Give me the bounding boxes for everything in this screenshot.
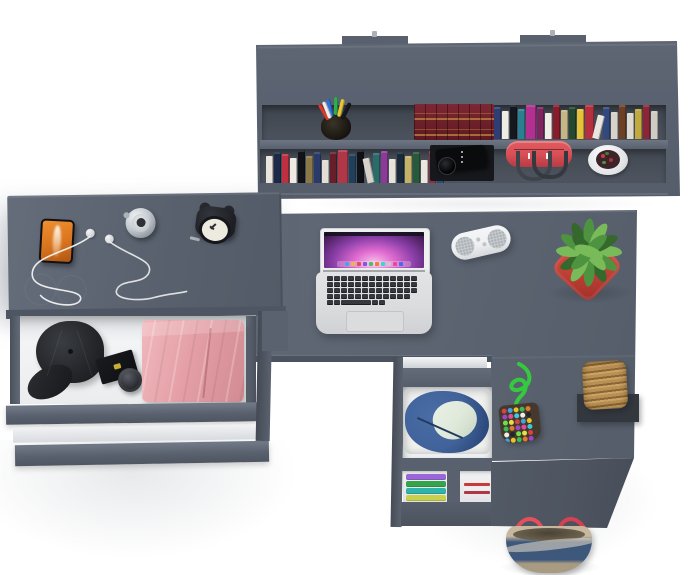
keyboard-row (327, 288, 423, 293)
watch-crown-icon (123, 212, 129, 218)
dock-icon (345, 262, 349, 266)
bead (519, 406, 524, 411)
key (334, 294, 340, 299)
key (341, 294, 347, 299)
wicker-basket (582, 360, 628, 410)
cap-button (68, 349, 73, 354)
book-spine (545, 113, 552, 139)
bead (503, 426, 508, 431)
key (362, 282, 368, 287)
desk-side-panel-top (262, 311, 288, 351)
book-spine (627, 113, 634, 139)
bead (516, 431, 521, 436)
book-spine (553, 105, 560, 139)
key (404, 276, 410, 281)
shelf-planter (588, 145, 628, 175)
book-spine (322, 160, 329, 183)
clothes-compartment (403, 471, 492, 502)
key (334, 276, 340, 281)
key (348, 282, 354, 287)
laptop-dock (337, 261, 411, 267)
drawer-side-wall (246, 316, 256, 404)
book-spine (290, 158, 297, 183)
black-cap (26, 321, 106, 401)
folded-linen (464, 483, 490, 486)
shelf-top-highlight (258, 44, 676, 49)
folded-linens-stack (464, 479, 490, 499)
key (383, 288, 389, 293)
book-spine (569, 107, 576, 139)
key (411, 276, 417, 281)
wall-shelf (256, 41, 680, 199)
lower-cabinet-bottom (401, 502, 493, 526)
planter-bud (601, 154, 605, 158)
folded-garment (406, 495, 446, 501)
book-spine (389, 159, 396, 183)
key (362, 294, 368, 299)
book-spine (619, 105, 626, 139)
key (376, 276, 382, 281)
bead (503, 420, 508, 425)
camera-recess (430, 145, 494, 181)
keyboard-row (327, 300, 423, 305)
key (397, 294, 403, 299)
bead (521, 418, 526, 423)
key (348, 288, 354, 293)
pens (320, 101, 354, 131)
book-spine (397, 152, 404, 183)
book-spine (298, 150, 305, 183)
planter-bud (609, 158, 613, 162)
left-cabinet-top (7, 192, 283, 312)
book-spine (266, 156, 273, 183)
book-spine (421, 160, 428, 183)
drawer-front (6, 402, 258, 425)
bead (504, 432, 509, 437)
key (355, 294, 361, 299)
key (327, 294, 333, 299)
book-spine (413, 152, 420, 183)
key (355, 288, 361, 293)
key (341, 276, 347, 281)
dock-icon (381, 262, 385, 266)
key (397, 288, 403, 293)
upper-drawer-slit (403, 357, 487, 368)
mounting-hook-icon (550, 30, 555, 36)
keyboard-row (327, 282, 423, 287)
key (327, 282, 333, 287)
bead (511, 438, 516, 443)
laptop (316, 226, 432, 336)
folded-linen (464, 479, 490, 482)
duffel-strap (532, 151, 568, 179)
laptop-base (316, 272, 432, 334)
key (376, 294, 382, 299)
bead (509, 420, 514, 425)
folded-garment (406, 481, 446, 487)
duffel-zipper (514, 149, 564, 150)
key (397, 282, 403, 287)
dock-icon (363, 262, 367, 266)
bead (507, 408, 512, 413)
key (334, 288, 340, 293)
lower-cabinet-band (403, 368, 491, 387)
antique-book-set (414, 104, 494, 140)
key (411, 288, 417, 293)
key (341, 300, 371, 305)
book-spine (330, 152, 337, 183)
cream-jar (118, 368, 142, 392)
open-drawer (10, 316, 256, 404)
bead (526, 412, 531, 417)
second-drawer-gap (13, 424, 265, 443)
dock-icon (351, 262, 355, 266)
key (397, 276, 403, 281)
key (390, 276, 396, 281)
key (348, 294, 354, 299)
camera-button (461, 161, 463, 163)
speaker-button (476, 237, 481, 242)
key (355, 282, 361, 287)
key (383, 282, 389, 287)
book-spine (373, 153, 380, 183)
drawer-front (15, 441, 269, 466)
key (390, 288, 396, 293)
book-spine (635, 109, 642, 139)
pink-pants (142, 320, 244, 402)
speaker-grille-icon (486, 227, 509, 250)
laptop-keyboard (327, 276, 423, 310)
dock-icon (369, 262, 373, 266)
key (390, 294, 396, 299)
key (383, 294, 389, 299)
book-spine (405, 156, 412, 183)
book-spine (274, 152, 281, 183)
key (376, 288, 382, 293)
key (327, 288, 333, 293)
pen-cup (320, 101, 354, 141)
bead (527, 424, 532, 429)
dock-icon (375, 262, 379, 266)
book-spine (306, 156, 313, 183)
bead (514, 413, 519, 418)
key (334, 300, 340, 305)
book-spine (561, 110, 568, 139)
bead (513, 407, 518, 412)
bead (522, 436, 527, 441)
laptop-screen (320, 228, 430, 274)
book-spine (603, 107, 610, 139)
shelf-bottom-highlight (258, 193, 668, 195)
key (362, 288, 368, 293)
laptop-trackpad (346, 311, 404, 332)
key (404, 294, 410, 299)
key (341, 288, 347, 293)
key (369, 294, 375, 299)
camera-button (461, 151, 463, 153)
key (383, 276, 389, 281)
book-spine (349, 154, 356, 183)
key (404, 288, 410, 293)
upper-book-row (494, 103, 662, 139)
book-spine (357, 150, 364, 183)
dock-icon (399, 262, 403, 266)
camera-button (461, 156, 463, 158)
book-spine (518, 109, 525, 139)
dock-icon (357, 262, 361, 266)
drawer-side-wall (10, 316, 20, 404)
folded-clothes-stack (406, 474, 446, 502)
book-spine (577, 109, 584, 139)
bead (509, 426, 514, 431)
speaker-button (482, 242, 487, 247)
dock-icon (387, 262, 391, 266)
bead (516, 437, 521, 442)
beaded-pouch (498, 402, 542, 444)
bead (520, 412, 525, 417)
dock-icon (393, 262, 397, 266)
folded-linen (464, 491, 490, 494)
book-spine (381, 151, 388, 183)
key (376, 282, 382, 287)
bead (527, 418, 532, 423)
bead (521, 424, 526, 429)
succulent-plant (543, 206, 635, 294)
book-spine (651, 111, 658, 139)
bead (501, 408, 506, 413)
key (327, 276, 333, 281)
key (372, 300, 378, 305)
bead (528, 436, 533, 441)
alarm-clock (194, 205, 238, 244)
book-spine (338, 150, 348, 183)
red-duffel-bag (506, 141, 572, 181)
planter-leaf (602, 161, 606, 164)
laptop-menubar (324, 232, 424, 236)
key (362, 276, 368, 281)
keyboard-row (327, 294, 423, 299)
book-spine (611, 112, 618, 139)
bead (525, 406, 530, 411)
folded-garment (406, 474, 446, 480)
key (369, 282, 375, 287)
book-spine (510, 105, 517, 139)
bead (515, 419, 520, 424)
book-spine (494, 107, 501, 139)
planter-leaf (605, 152, 609, 155)
book-spine (643, 105, 650, 139)
keyboard-row (327, 276, 423, 281)
key (327, 300, 333, 305)
folded-linen (464, 495, 490, 498)
bead (522, 430, 527, 435)
mounting-hook-icon (372, 31, 377, 37)
book-spine (502, 111, 509, 139)
book-spine (314, 152, 321, 183)
laptop-wallpaper (324, 232, 424, 268)
denim-drawer (403, 387, 492, 458)
bead (510, 432, 515, 437)
bead (515, 425, 520, 430)
folded-linen (464, 487, 490, 490)
key (379, 300, 385, 305)
key (334, 282, 340, 287)
key (390, 282, 396, 287)
key (404, 282, 410, 287)
product-image (0, 0, 700, 575)
key (355, 276, 361, 281)
lower-cabinet-band (401, 458, 492, 471)
lower-book-row (266, 149, 432, 183)
folded-garment (406, 488, 446, 494)
key (369, 288, 375, 293)
gift-box-logo (113, 363, 121, 370)
speaker-grille-icon (454, 235, 477, 258)
bead (528, 430, 533, 435)
tote-bag (506, 526, 592, 573)
key (369, 276, 375, 281)
camera-lens-icon (438, 157, 456, 175)
key (341, 282, 347, 287)
book-spine (537, 107, 544, 139)
book-spine (526, 105, 536, 139)
compartment-divider (447, 471, 460, 502)
key (348, 276, 354, 281)
watch-center (137, 218, 146, 227)
bead (508, 414, 513, 419)
bead (502, 414, 507, 419)
book-spine (282, 154, 289, 183)
key (411, 282, 417, 287)
